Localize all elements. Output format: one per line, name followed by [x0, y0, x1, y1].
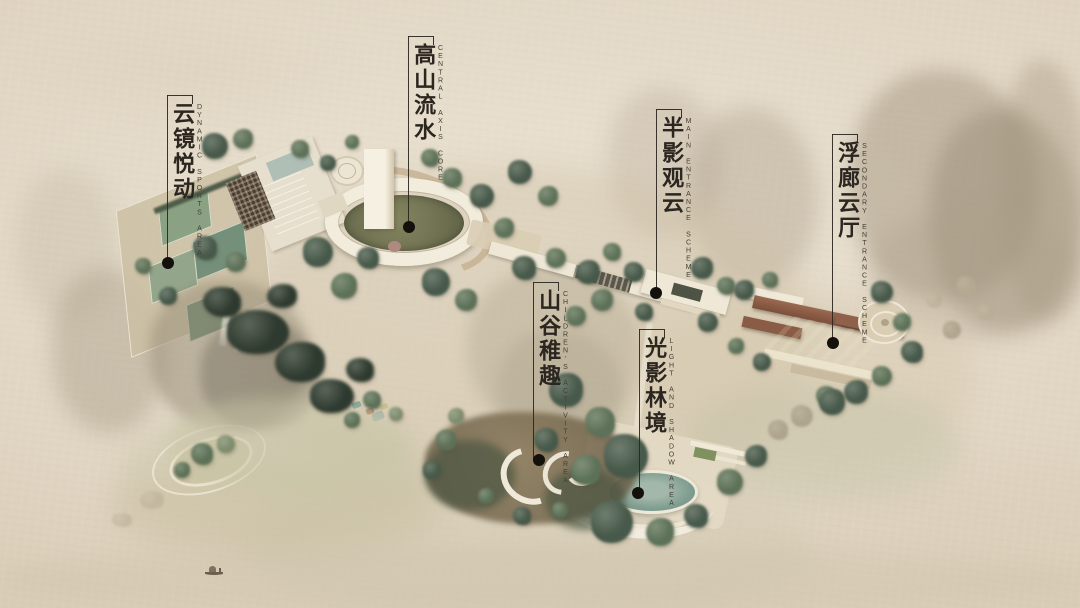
tree: [546, 248, 566, 268]
leader-line: [832, 134, 833, 343]
leader-line: [167, 95, 168, 263]
tree: [691, 257, 713, 279]
tree: [310, 379, 354, 413]
tree: [436, 430, 456, 450]
label-zh: 高山流水: [412, 43, 435, 143]
tree: [819, 389, 845, 415]
tree: [646, 518, 674, 546]
tree: [508, 160, 532, 184]
tree: [791, 405, 813, 427]
tree: [762, 272, 778, 288]
tree: [871, 281, 893, 303]
tree: [844, 380, 868, 404]
tree: [112, 513, 132, 527]
leader-dot-icon: [403, 221, 415, 233]
label-en: SECONDARY ENTRANCE SCHEME: [861, 143, 868, 346]
tree: [624, 262, 644, 282]
tree: [512, 256, 536, 280]
tree: [267, 284, 297, 308]
tree: [717, 277, 735, 295]
tree: [698, 312, 718, 332]
tree: [478, 488, 494, 504]
tree: [291, 140, 309, 158]
tree: [753, 353, 771, 371]
tree: [576, 260, 600, 284]
boat-figure: [219, 568, 221, 572]
tree: [363, 391, 381, 409]
tree: [389, 407, 403, 421]
tree: [494, 218, 514, 238]
tree: [585, 407, 615, 437]
tree: [203, 287, 241, 317]
tree: [604, 434, 648, 478]
leader-line: [408, 36, 409, 227]
tree: [226, 252, 246, 272]
label-zh: 浮廊云厅: [836, 141, 859, 241]
tree: [423, 461, 441, 479]
tree: [603, 243, 621, 261]
tree: [513, 507, 531, 525]
tree: [140, 491, 164, 509]
tree: [345, 135, 359, 149]
tree: [275, 342, 325, 382]
tree: [956, 276, 976, 296]
tree: [202, 133, 228, 159]
tree: [591, 501, 633, 543]
label-zh: 山谷稚趣: [537, 289, 560, 389]
tree: [331, 273, 357, 299]
tree: [901, 341, 923, 363]
tree: [470, 184, 494, 208]
label-en: CHILDREN'S ACTIVITY AREA: [562, 291, 569, 485]
tree: [552, 502, 568, 518]
tree: [344, 412, 360, 428]
tree: [346, 358, 374, 382]
tree: [174, 462, 190, 478]
tree: [893, 313, 911, 331]
tree: [872, 366, 892, 386]
leader-line: [639, 329, 640, 493]
masterplan-canvas: 云镜悦动 DYNAMIC SPORTS AREA 高山流水 CENTRAL AX…: [0, 0, 1080, 608]
leader-dot-icon: [650, 287, 662, 299]
tree: [455, 289, 477, 311]
tree: [357, 247, 379, 269]
leader-line: [533, 282, 534, 460]
leader-dot-icon: [827, 337, 839, 349]
tree: [635, 303, 653, 321]
label-en: MAIN ENTRANCE SCHEME: [685, 118, 692, 280]
tree: [734, 280, 754, 300]
tree: [233, 129, 253, 149]
tree: [728, 338, 744, 354]
label-zh: 云镜悦动: [171, 102, 194, 202]
tree: [926, 292, 942, 308]
tree: [159, 287, 177, 305]
tree: [684, 504, 708, 528]
tree: [571, 455, 601, 485]
label-zh: 半影观云: [660, 116, 683, 216]
leader-dot-icon: [632, 487, 644, 499]
tree: [191, 443, 213, 465]
tree: [303, 237, 333, 267]
tree: [978, 304, 994, 320]
leader-dot-icon: [162, 257, 174, 269]
tree: [448, 408, 464, 424]
boat-hull: [205, 572, 223, 575]
tree: [566, 306, 586, 326]
leader-dot-icon: [533, 454, 545, 466]
tree: [320, 155, 336, 171]
tree: [217, 435, 235, 453]
tree: [768, 420, 788, 440]
label-zh: 光影林境: [643, 336, 666, 436]
tree: [135, 258, 151, 274]
tree: [534, 428, 558, 452]
leader-line: [656, 109, 657, 293]
tree: [538, 186, 558, 206]
tree: [717, 469, 743, 495]
label-en: LIGHT AND SHADOW AREA: [668, 338, 675, 508]
tree: [591, 289, 613, 311]
tree: [422, 268, 450, 296]
label-en: DYNAMIC SPORTS AREA: [196, 104, 203, 258]
label-en: CENTRAL AXIS CORE: [437, 45, 444, 183]
tree: [442, 168, 462, 188]
tree: [943, 321, 961, 339]
tree: [227, 310, 289, 354]
tree: [745, 445, 767, 467]
